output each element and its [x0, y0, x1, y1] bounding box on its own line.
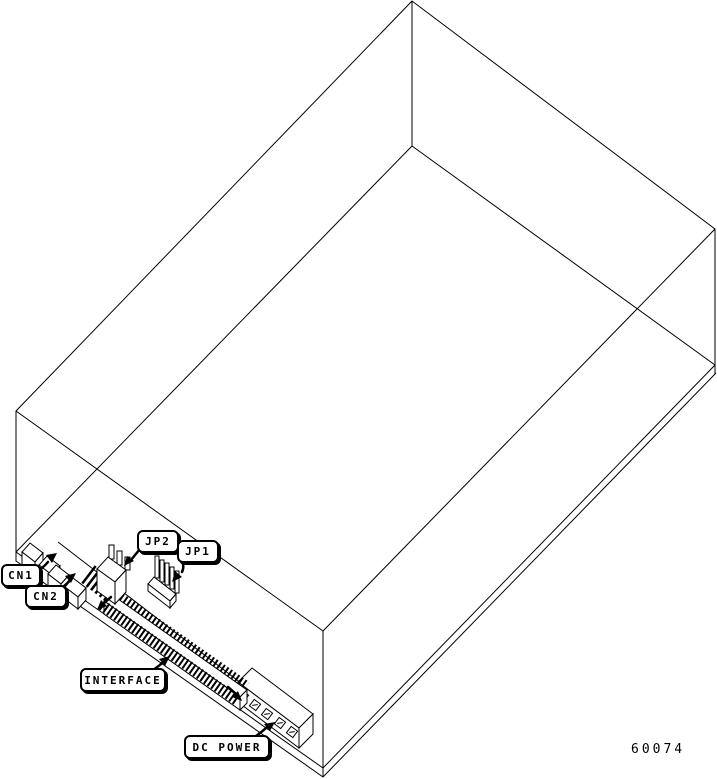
diagram-canvas: CN1 CN2 JP2 JP1 INTERFACE DC POWER 60074	[0, 0, 717, 779]
enclosure-wireframe	[16, 1, 716, 777]
enclosure-silhouette	[16, 1, 715, 768]
enclosure-inner-edges	[16, 1, 715, 768]
callout-dc-power: DC POWER	[184, 735, 270, 759]
dc-power-leader	[256, 722, 275, 736]
callout-jp2: JP2	[137, 530, 179, 553]
jp2-jumper	[88, 545, 130, 604]
callout-cn1: CN1	[1, 564, 41, 587]
jp1-jumper	[148, 556, 179, 608]
drive-line-art	[0, 0, 717, 779]
figure-number: 60074	[631, 742, 685, 757]
callout-cn2: CN2	[25, 585, 67, 608]
callout-interface: INTERFACE	[80, 668, 166, 692]
callout-jp1: JP1	[177, 540, 219, 563]
interface-connector	[102, 591, 247, 710]
